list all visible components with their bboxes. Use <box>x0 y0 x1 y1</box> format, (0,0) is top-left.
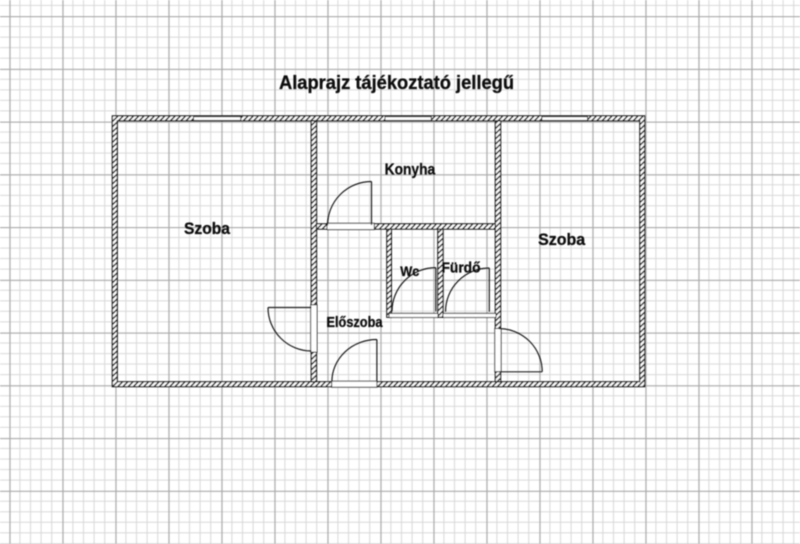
svg-text:Szoba: Szoba <box>184 220 231 238</box>
svg-text:Konyha: Konyha <box>385 162 436 179</box>
svg-text:Alaprajz tájékoztató jellegű: Alaprajz tájékoztató jellegű <box>279 72 514 94</box>
svg-text:Wc: Wc <box>400 263 419 279</box>
svg-text:Szoba: Szoba <box>538 231 586 249</box>
svg-text:Előszoba: Előszoba <box>327 314 384 331</box>
svg-text:Fürdő: Fürdő <box>442 261 481 277</box>
